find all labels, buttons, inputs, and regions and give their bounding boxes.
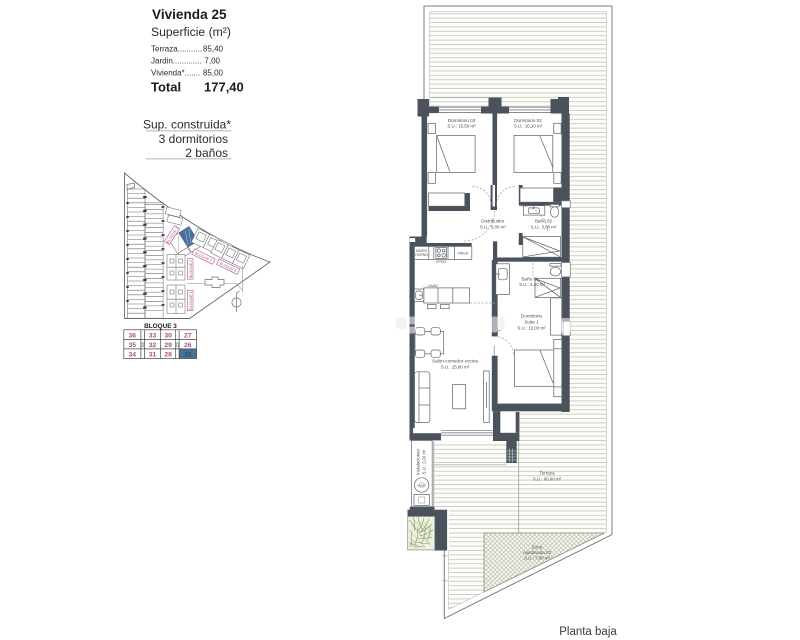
svg-text:2 baños: 2 baños bbox=[185, 146, 228, 160]
svg-text:Instalaciones: Instalaciones bbox=[416, 448, 421, 474]
svg-text:S.U.: 25,80 m²: S.U.: 25,80 m² bbox=[441, 365, 470, 370]
svg-text:VITRO: VITRO bbox=[436, 260, 447, 264]
svg-text:Ajardinada 02: Ajardinada 02 bbox=[523, 550, 552, 555]
svg-text:S.U.: 7,00 m²: S.U.: 7,00 m² bbox=[524, 556, 550, 561]
svg-text:Salón-comedor-cocina: Salón-comedor-cocina bbox=[432, 359, 478, 364]
svg-text:Dormitorio 03: Dormitorio 03 bbox=[448, 118, 476, 123]
svg-text:Dormitorio: Dormitorio bbox=[521, 314, 543, 319]
svg-text:30: 30 bbox=[164, 332, 172, 339]
svg-text:85,40: 85,40 bbox=[203, 45, 224, 54]
svg-text:28: 28 bbox=[164, 351, 172, 358]
svg-text:Vivienda*.......: Vivienda*....... bbox=[151, 69, 200, 78]
svg-text:33: 33 bbox=[149, 332, 157, 339]
svg-text:Sup. construida*: Sup. construida* bbox=[143, 118, 231, 132]
svg-text:Superficie (m²): Superficie (m²) bbox=[151, 25, 231, 39]
svg-text:Vivienda 25: Vivienda 25 bbox=[152, 7, 227, 22]
svg-text:BLOQUE 1: BLOQUE 1 bbox=[189, 291, 193, 309]
svg-text:36: 36 bbox=[129, 332, 137, 339]
svg-text:Baño 01: Baño 01 bbox=[521, 277, 539, 282]
svg-text:S.U.: 2,00 m²: S.U.: 2,00 m² bbox=[422, 449, 427, 474]
svg-text:BLOQUE 2: BLOQUE 2 bbox=[189, 260, 193, 278]
svg-text:3 dormitorios: 3 dormitorios bbox=[159, 132, 228, 146]
svg-text:S.U.: 60,90 m²: S.U.: 60,90 m² bbox=[533, 476, 562, 481]
svg-text:LAVAD.: LAVAD. bbox=[417, 483, 427, 487]
svg-text:Terraza: Terraza bbox=[539, 471, 555, 476]
svg-text:Total: Total bbox=[151, 80, 181, 95]
svg-text:177,40: 177,40 bbox=[204, 80, 244, 95]
svg-text:25: 25 bbox=[184, 351, 192, 358]
svg-text:HORNO: HORNO bbox=[415, 253, 428, 257]
svg-text:34: 34 bbox=[129, 351, 137, 358]
svg-text:Baño 02: Baño 02 bbox=[535, 219, 553, 224]
svg-text:27: 27 bbox=[184, 332, 192, 339]
svg-text:Suite 1: Suite 1 bbox=[524, 319, 539, 324]
svg-text:FRIGO: FRIGO bbox=[458, 252, 469, 256]
svg-text:S.U.: 10,10 m²: S.U.: 10,10 m² bbox=[514, 124, 543, 129]
svg-text:85,00: 85,00 bbox=[203, 69, 224, 78]
svg-text:Zona: Zona bbox=[532, 545, 543, 550]
svg-text:S.U.: 12,00 m²: S.U.: 12,00 m² bbox=[517, 326, 546, 331]
svg-text:Distribuidor: Distribuidor bbox=[481, 219, 505, 224]
svg-text:LAVAV.: LAVAV. bbox=[428, 284, 439, 288]
svg-text:Dormitorio 02: Dormitorio 02 bbox=[514, 118, 542, 123]
svg-text:32: 32 bbox=[149, 342, 157, 349]
svg-text:35: 35 bbox=[129, 342, 137, 349]
svg-text:S.U.: 3,60 m²: S.U.: 3,60 m² bbox=[531, 224, 557, 229]
svg-text:BLOQUE 3: BLOQUE 3 bbox=[144, 323, 177, 330]
svg-text:S.U.: 10,50 m²: S.U.: 10,50 m² bbox=[447, 124, 476, 129]
svg-text:Jardin.............: Jardin............. bbox=[151, 57, 202, 66]
svg-text:26: 26 bbox=[184, 342, 192, 349]
svg-text:Planta baja: Planta baja bbox=[559, 626, 617, 638]
svg-text:31: 31 bbox=[149, 351, 157, 358]
svg-text:Terraza...........: Terraza........... bbox=[151, 45, 202, 54]
svg-text:S.U.: 5,00 m²: S.U.: 5,00 m² bbox=[480, 224, 506, 229]
svg-text:7,00: 7,00 bbox=[204, 57, 220, 66]
svg-text:S.U.: 4,40 m²: S.U.: 4,40 m² bbox=[519, 282, 545, 287]
svg-text:29: 29 bbox=[164, 342, 172, 349]
